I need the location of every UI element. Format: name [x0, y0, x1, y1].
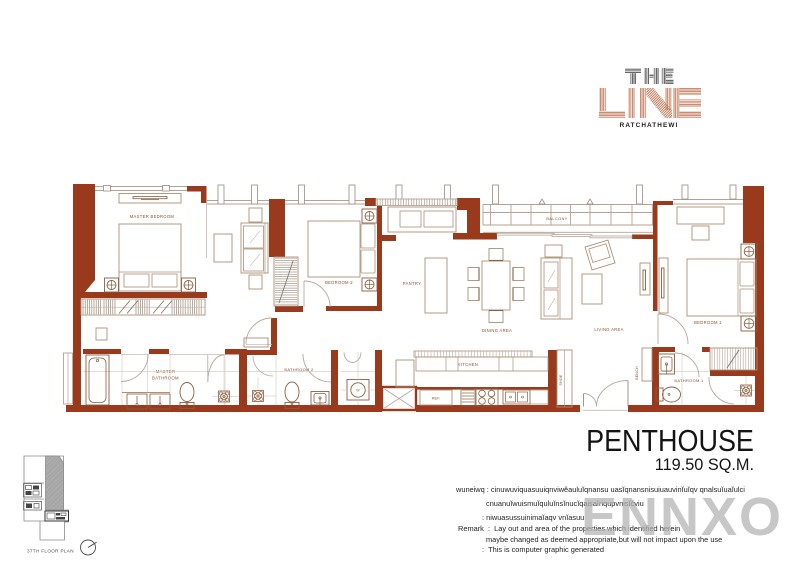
svg-text:REF.: REF.: [432, 396, 441, 401]
svg-text:RATCHATHEWI: RATCHATHEWI: [620, 122, 679, 129]
svg-text:BALCONY: BALCONY: [546, 216, 567, 221]
svg-text:BENCH: BENCH: [635, 366, 639, 380]
svg-text:BATHROOM 1: BATHROOM 1: [674, 378, 704, 383]
svg-text:37TH FLOOR PLAN: 37TH FLOOR PLAN: [27, 549, 74, 554]
svg-text:KITCHEN: KITCHEN: [458, 362, 478, 367]
svg-text:DINING AREA: DINING AREA: [482, 328, 512, 333]
svg-text:BATHROOM: BATHROOM: [152, 376, 179, 381]
svg-text:MASTER BEDROOM: MASTER BEDROOM: [130, 214, 175, 219]
svg-text:BEDROOM 2: BEDROOM 2: [325, 280, 353, 285]
svg-text:BEDROOM 1: BEDROOM 1: [694, 320, 722, 325]
svg-text:W: W: [356, 389, 360, 393]
svg-text:LIVING AREA: LIVING AREA: [594, 327, 623, 332]
svg-text:SHOE: SHOE: [559, 374, 563, 385]
svg-text:PANTRY: PANTRY: [403, 281, 421, 286]
